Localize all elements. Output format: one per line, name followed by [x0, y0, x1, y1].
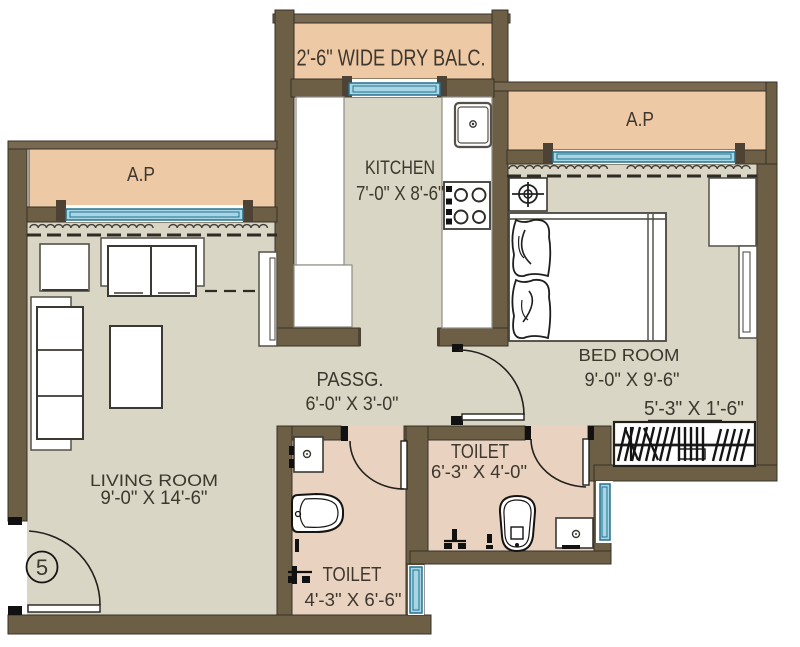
svg-text:5'-3" X 1'-6": 5'-3" X 1'-6" — [644, 398, 744, 420]
svg-text:2'-6" WIDE DRY BALC.: 2'-6" WIDE DRY BALC. — [297, 45, 486, 71]
svg-text:TOILET: TOILET — [323, 563, 382, 586]
svg-text:A.P: A.P — [127, 164, 155, 186]
svg-text:9'-0" X 14'-6": 9'-0" X 14'-6" — [101, 488, 208, 509]
svg-text:4'-3" X 6'-6": 4'-3" X 6'-6" — [305, 590, 402, 610]
svg-text:BED ROOM: BED ROOM — [579, 345, 680, 365]
svg-text:TOILET: TOILET — [451, 440, 509, 463]
svg-text:9'-0" X 9'-6": 9'-0" X 9'-6" — [585, 370, 680, 391]
svg-text:7'-0" X 8'-6": 7'-0" X 8'-6" — [356, 183, 444, 205]
svg-text:5: 5 — [36, 555, 48, 580]
svg-text:PASSG.: PASSG. — [317, 369, 384, 391]
svg-text:A.P: A.P — [626, 109, 654, 131]
svg-text:KITCHEN: KITCHEN — [365, 157, 435, 179]
svg-text:6'-3" X 4'-0": 6'-3" X 4'-0" — [431, 462, 527, 482]
svg-text:6'-0" X 3'-0": 6'-0" X 3'-0" — [306, 394, 399, 415]
